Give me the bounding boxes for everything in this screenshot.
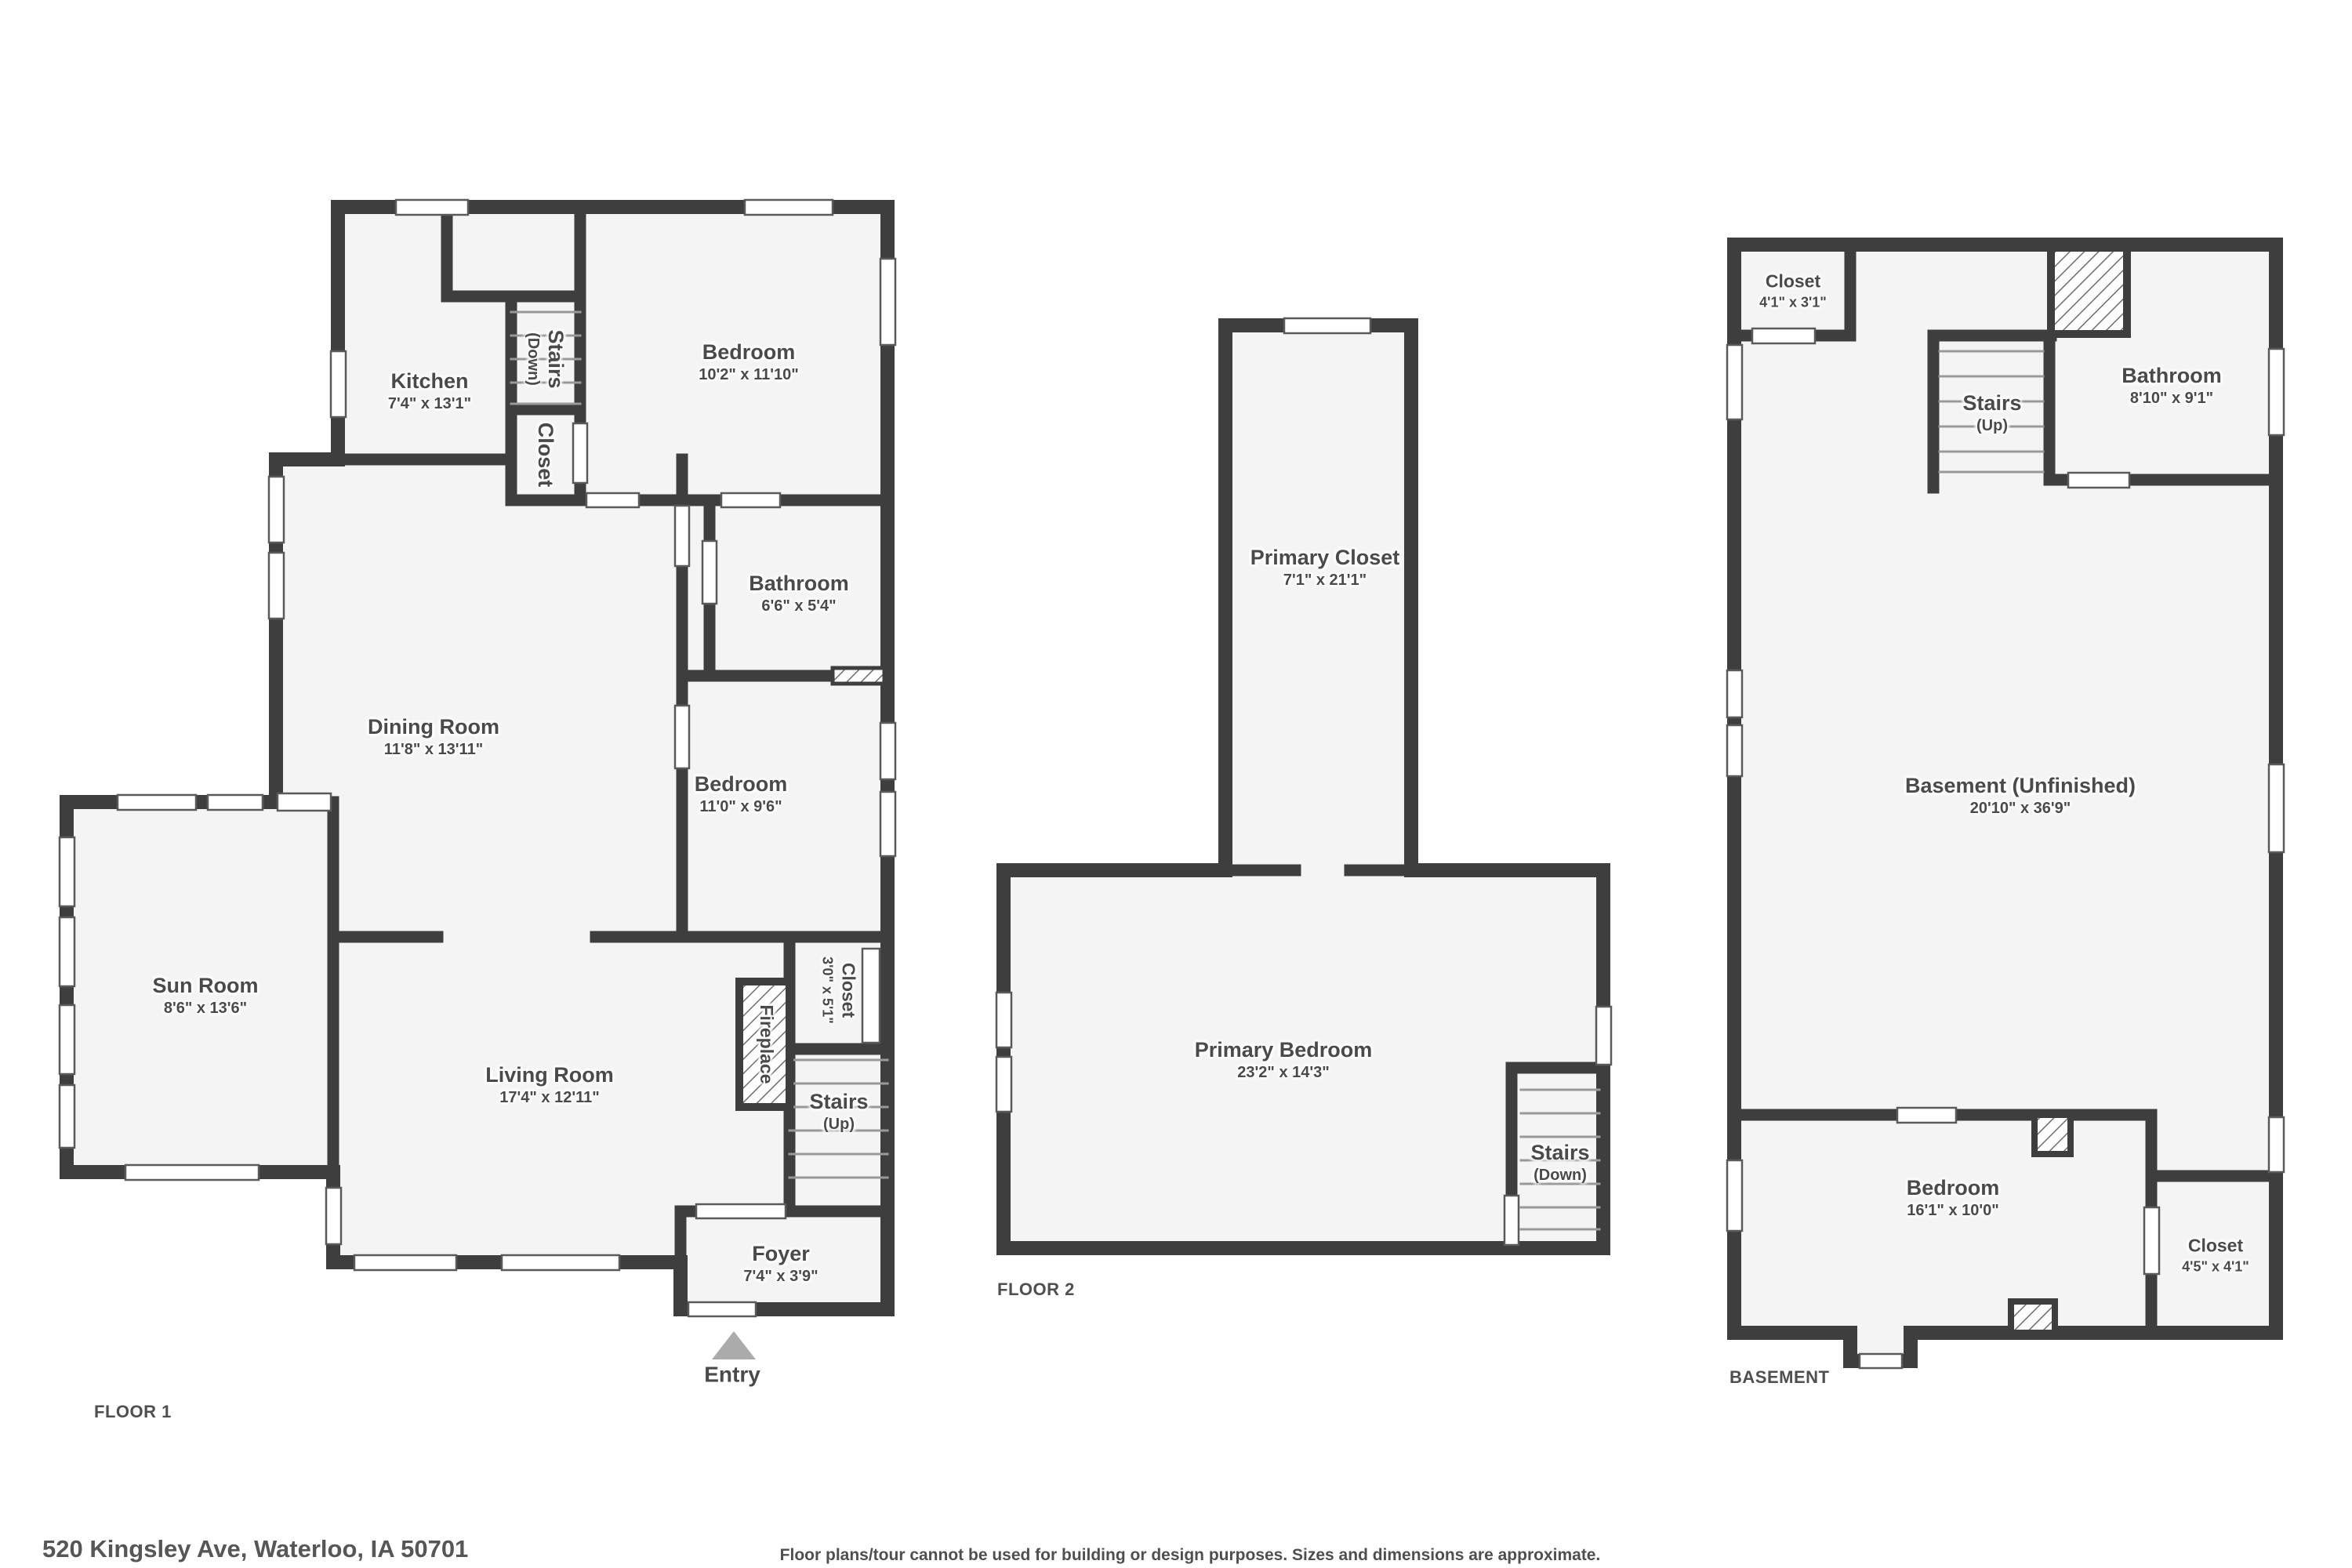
room-label-bathroom-f1: Bathroom 6'6" x 5'4" xyxy=(749,572,849,615)
room-label-stairs-down-f1: Stairs (Down) xyxy=(524,329,568,388)
floor2-title: FLOOR 2 xyxy=(997,1279,1075,1300)
room-label-bathroom-bsmt: Bathroom 8'10" x 9'1" xyxy=(2122,364,2222,408)
room-label-kitchen: Kitchen 7'4" x 13'1" xyxy=(388,369,471,413)
room-label-living-room: Living Room 17'4" x 12'11" xyxy=(485,1063,614,1107)
room-label-basement-main: Basement (Unfinished) 20'10" x 36'9" xyxy=(1905,774,2136,818)
room-label-foyer: Foyer 7'4" x 3'9" xyxy=(743,1242,818,1286)
room-label-stairs-up-f1: Stairs (Up) xyxy=(809,1090,868,1134)
room-label-fireplace: Fireplace xyxy=(756,1005,776,1084)
room-label-closet-bed-bsmt: Closet 4'5" x 4'1" xyxy=(2182,1236,2249,1275)
disclaimer-text: Floor plans/tour cannot be used for buil… xyxy=(780,1546,1601,1565)
room-label-primary-closet: Primary Closet 7'1" x 21'1" xyxy=(1250,546,1400,590)
room-label-sun-room: Sun Room 8'6" x 13'6" xyxy=(153,974,259,1018)
basement-hatch-bottom xyxy=(2011,1301,2055,1333)
floorplan-page: Kitchen 7'4" x 13'1" Stairs (Down) Close… xyxy=(0,0,2352,1568)
room-label-bedroom-top-f1: Bedroom 10'2" x 11'10" xyxy=(699,340,798,384)
entry-label: Entry xyxy=(704,1362,760,1386)
floor1-vent-hatch xyxy=(833,668,884,684)
room-label-bedroom-bsmt: Bedroom 16'1" x 10'0" xyxy=(1907,1176,2000,1220)
room-label-closet-stairs-f1: Closet xyxy=(534,423,557,488)
room-label-bedroom-mid-f1: Bedroom 11'0" x 9'6" xyxy=(695,772,788,816)
entry-arrow xyxy=(712,1331,756,1359)
property-address: 520 Kingsley Ave, Waterloo, IA 50701 xyxy=(42,1535,468,1563)
room-label-closet-top-bsmt: Closet 4'1" x 3'1" xyxy=(1759,272,1827,310)
room-label-stairs-down-f2: Stairs (Down) xyxy=(1530,1141,1589,1185)
room-label-dining-room: Dining Room 11'8" x 13'11" xyxy=(368,715,499,759)
chimney-hatch xyxy=(2051,248,2127,334)
floor2-plan xyxy=(996,318,1611,1248)
basement-hatch-top xyxy=(2034,1115,2071,1154)
room-label-closet-hall-f1: Closet 3'0" x 5'1" xyxy=(820,956,858,1024)
floor1-title: FLOOR 1 xyxy=(94,1402,172,1422)
room-label-stairs-up-bsmt: Stairs (Up) xyxy=(1962,391,2021,435)
room-label-primary-bedroom: Primary Bedroom 23'2" x 14'3" xyxy=(1195,1038,1373,1082)
basement-title: BASEMENT xyxy=(1730,1367,1829,1388)
